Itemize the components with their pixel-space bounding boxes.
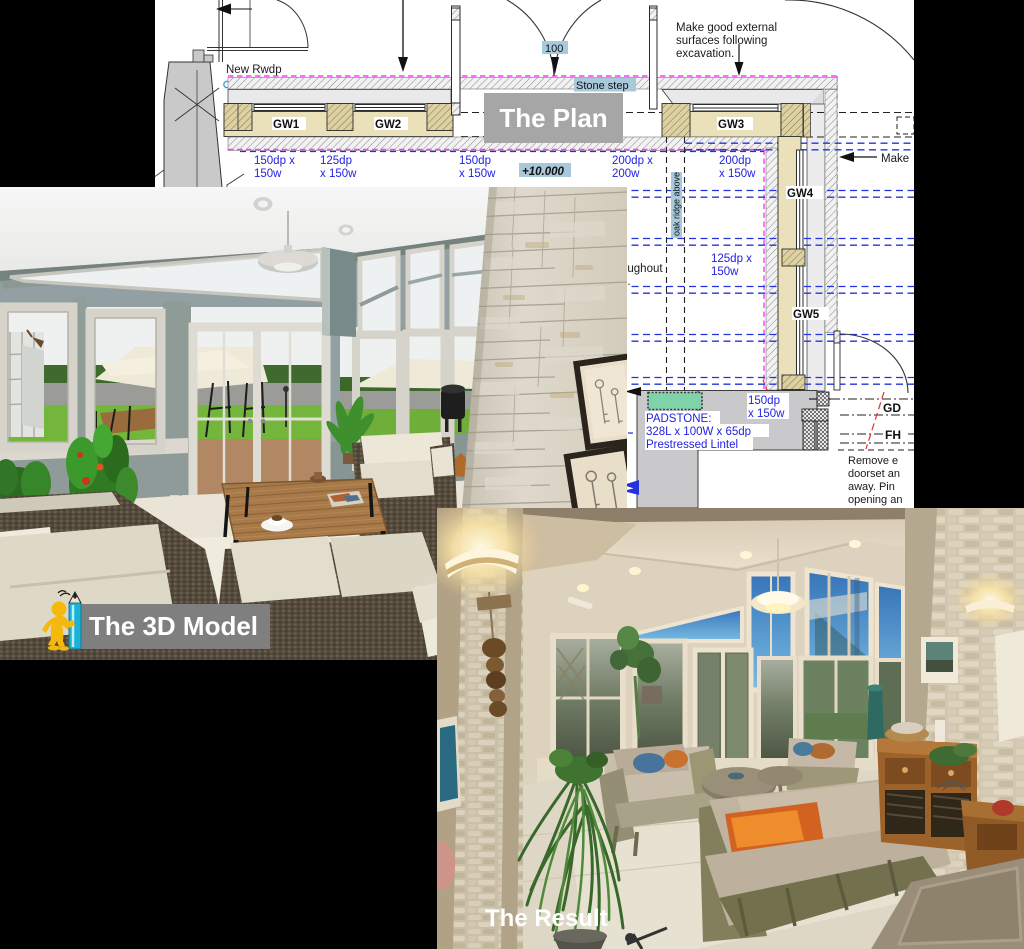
svg-text:PADSTONE:: PADSTONE: xyxy=(646,413,711,425)
svg-text:125dp: 125dp xyxy=(320,155,352,167)
svg-text:200w: 200w xyxy=(612,168,640,180)
svg-text:Prestressed Lintel: Prestressed Lintel xyxy=(646,439,738,451)
svg-text:x 150w: x 150w xyxy=(719,168,756,180)
svg-text:Stone step: Stone step xyxy=(576,80,629,92)
svg-text:x 150w: x 150w xyxy=(459,168,496,180)
svg-text:+10.000: +10.000 xyxy=(522,166,564,178)
svg-text:Remove e: Remove e xyxy=(848,455,898,467)
svg-text:125dp x: 125dp x xyxy=(711,253,752,265)
svg-text:100: 100 xyxy=(545,43,563,55)
svg-text:away. Pin: away. Pin xyxy=(848,481,895,493)
svg-text:200dp x: 200dp x xyxy=(612,155,653,167)
svg-text:New Rwdp: New Rwdp xyxy=(226,64,282,76)
svg-text:150w: 150w xyxy=(711,266,739,278)
svg-text:oak ridge above: oak ridge above xyxy=(672,172,682,236)
svg-text:GW1: GW1 xyxy=(273,119,300,131)
svg-text:doorset an: doorset an xyxy=(848,468,900,480)
svg-text:Make good external: Make good external xyxy=(676,22,777,34)
svg-text:excavation.: excavation. xyxy=(676,48,734,60)
svg-text:opening an: opening an xyxy=(848,494,902,506)
svg-text:GW4: GW4 xyxy=(787,188,814,200)
svg-text:GW3: GW3 xyxy=(718,119,744,131)
svg-text:150dp: 150dp xyxy=(748,395,780,407)
svg-text:surfaces following: surfaces following xyxy=(676,35,767,47)
svg-text:x 150w: x 150w xyxy=(748,408,785,420)
svg-text:150dp x: 150dp x xyxy=(254,155,295,167)
svg-text:FH: FH xyxy=(885,428,901,442)
svg-text:x 150w: x 150w xyxy=(320,168,357,180)
svg-text:150dp: 150dp xyxy=(459,155,491,167)
svg-text:150w: 150w xyxy=(254,168,282,180)
svg-text:Make: Make xyxy=(881,153,909,165)
svg-text:328L x 100W x 65dp: 328L x 100W x 65dp xyxy=(646,426,751,438)
svg-text:GW5: GW5 xyxy=(793,309,820,321)
svg-text:GW2: GW2 xyxy=(375,119,401,131)
svg-text:oughout: oughout xyxy=(621,263,663,275)
svg-text:GD: GD xyxy=(883,401,901,415)
svg-text:200dp: 200dp xyxy=(719,155,751,167)
